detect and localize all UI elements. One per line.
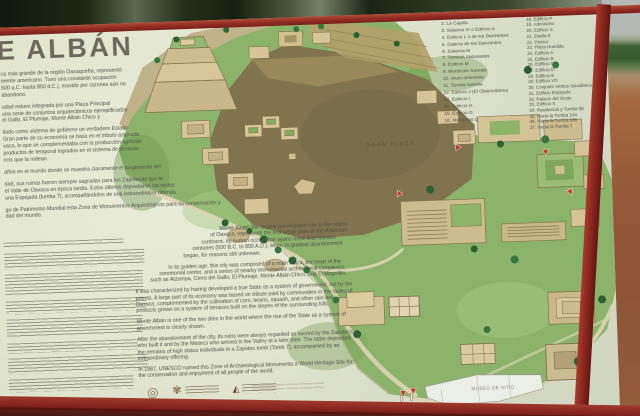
english-text-block: Monte Albán, the largest pre-Hispanic ci… [133, 221, 356, 384]
inah-circle-logo: ◎ [147, 384, 159, 397]
paragraph: go de Patrimonio Mundial esta Zona de Mo… [5, 199, 230, 221]
sign-title: E ALBÁN [0, 31, 134, 67]
english-paragraph: After the abandonment of the city, its r… [137, 328, 356, 361]
grand-stairway-platform [400, 198, 486, 245]
inah-logo: ✾ [172, 383, 219, 396]
illegible-paragraph [4, 248, 144, 269]
english-paragraph: Monte Albán is one of the two sites in t… [136, 311, 354, 332]
map-legend-column-1: 1. Juego de Pelota2. La Capilla3. Sistem… [441, 12, 527, 125]
inah-gear-icon: ✾ [172, 385, 182, 396]
english-paragraph: It was characterized by having developed… [135, 281, 354, 314]
spanish-text-block: ca más grande de la región Oaxaqueña, re… [1, 63, 231, 225]
paragraph: dad, sus ruinas fueron siempre sagradas … [4, 173, 230, 202]
gran-plaza-label: GRAN PLAZA [366, 141, 416, 149]
monte-alban-sign-panel: MUSEO DE SITIO GRAN PLAZA E ALBÁN ca más… [0, 6, 620, 416]
inah-logo-text [184, 384, 218, 394]
english-paragraph: In 1987, UNESCO named this Zone of Archa… [138, 359, 356, 380]
rooms-building-b [389, 295, 420, 316]
paragraph: udad estuvo integrada por una Plaza Prin… [2, 96, 228, 125]
illegible-paragraph [9, 375, 134, 392]
illegible-paragraph [5, 269, 144, 296]
illegible-paragraph [7, 339, 137, 354]
paragraph: llado como sistema de gobierno un verdad… [3, 122, 229, 165]
plaza-north-building-2 [312, 31, 330, 43]
illegible-paragraph [6, 314, 143, 338]
illegible-paragraph [6, 296, 146, 314]
illegible-paragraph [8, 353, 148, 374]
rooms-building-a [461, 343, 496, 364]
ballcourt [278, 30, 303, 46]
plaza-north-building [249, 46, 269, 59]
museum-label: MUSEO DE SITIO [471, 384, 515, 391]
illegible-text-block [4, 237, 151, 397]
conaculta-mark-icon: ◭ [232, 383, 239, 392]
photo-of-site-map-sign: MUSEO DE SITIO GRAN PLAZA E ALBÁN ca más… [0, 0, 640, 416]
